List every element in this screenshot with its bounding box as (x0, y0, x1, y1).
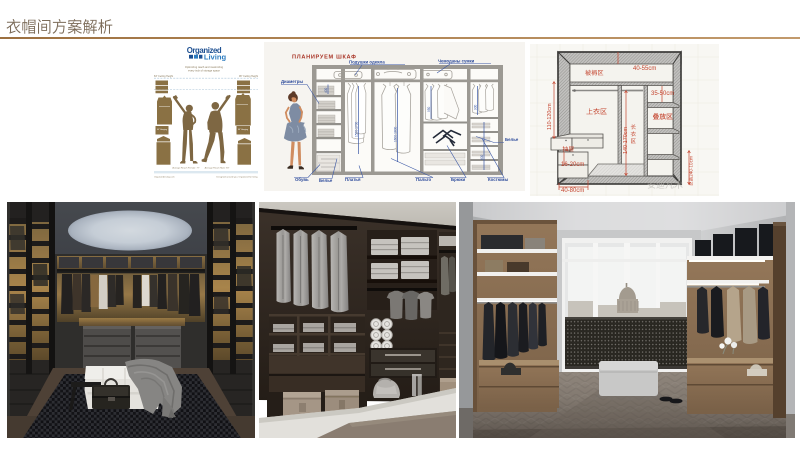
svg-text:40-80cm: 40-80cm (561, 188, 584, 194)
svg-text:400: 400 (324, 87, 328, 93)
svg-text:Living: Living (204, 53, 227, 62)
svg-text:Белье: Белье (505, 137, 519, 142)
svg-text:16-20cm: 16-20cm (561, 162, 584, 168)
svg-text:Optimizing reach and maximizin: Optimizing reach and maximizing (185, 65, 224, 69)
svg-text:110-120cm: 110-120cm (547, 103, 553, 130)
svg-text:Average Reach Male: 83": Average Reach Male: 83" (205, 167, 230, 170)
svg-text:ПЛАНИРУЕМ ШКАФ: ПЛАНИРУЕМ ШКАФ (292, 55, 357, 61)
svg-text:1500-1700: 1500-1700 (355, 122, 359, 137)
svg-text:96" Ceiling Height: 96" Ceiling Height (239, 75, 258, 78)
svg-text:Average Reach Female: 77": Average Reach Female: 77" (172, 167, 200, 170)
svg-text:40-55cm: 40-55cm (633, 66, 656, 72)
svg-text:66" Hanging: 66" Hanging (238, 129, 248, 131)
svg-text:950: 950 (427, 106, 431, 112)
svg-text:60" Hanging: 60" Hanging (157, 129, 167, 131)
svg-text:OrganizedLiving.com: OrganizedLiving.com (154, 176, 175, 179)
svg-text:35-50cm: 35-50cm (651, 91, 674, 97)
svg-text:84" Ceiling Height: 84" Ceiling Height (154, 75, 173, 78)
svg-text:Диаметры: Диаметры (281, 79, 303, 84)
svg-text:900: 900 (474, 104, 478, 110)
svg-text:Чемоданы сумки: Чемоданы сумки (438, 59, 475, 64)
svg-text:every inch of storage space: every inch of storage space (188, 69, 220, 73)
svg-text:Подушки одеяла: Подушки одеяла (349, 60, 385, 65)
svg-text:140-170cm: 140-170cm (623, 127, 629, 154)
svg-text:1600-1800: 1600-1800 (394, 127, 398, 142)
svg-text:Designed around you. Organized: Designed around you. Organized for livin… (217, 176, 259, 179)
svg-text:600: 600 (480, 154, 484, 160)
